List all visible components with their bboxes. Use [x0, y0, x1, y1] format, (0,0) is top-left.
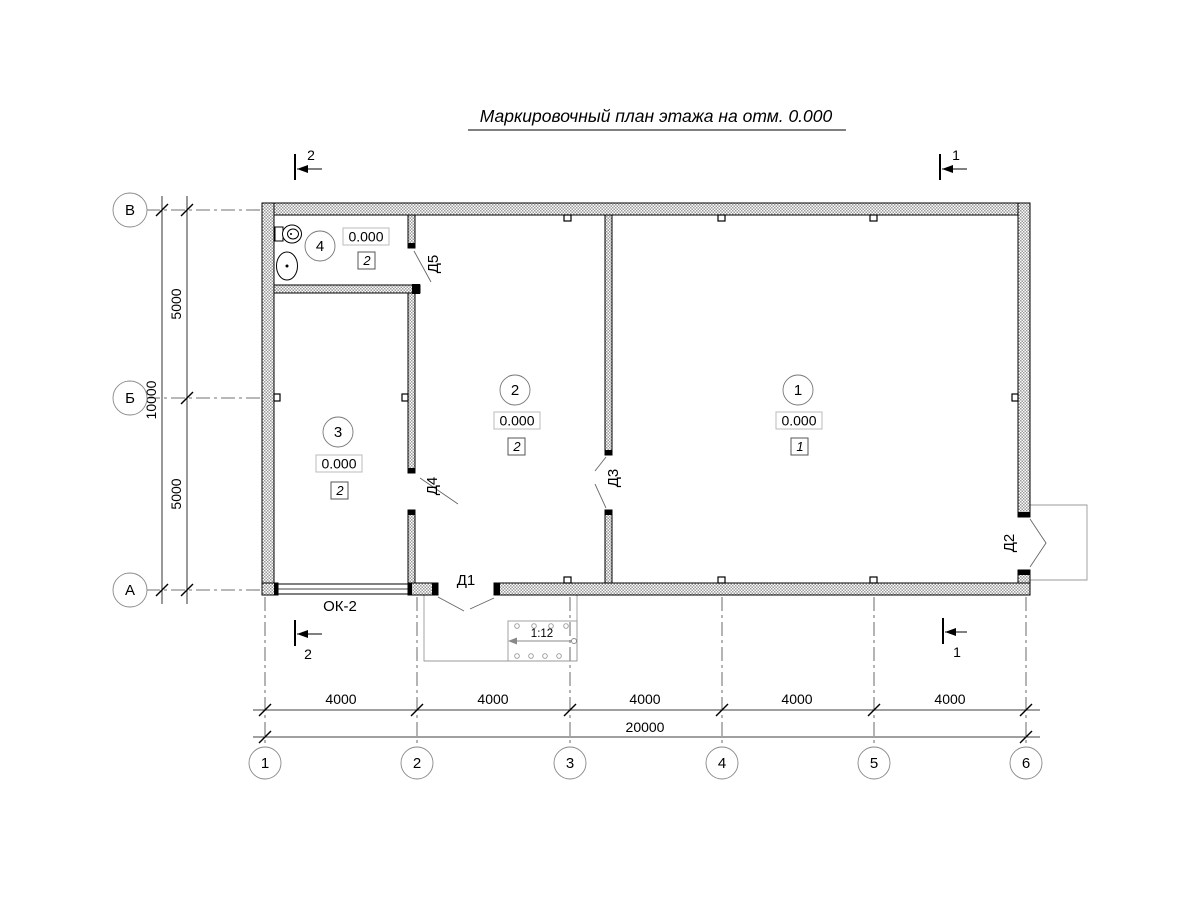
- wall-right-upper: [1018, 203, 1030, 517]
- cap: [605, 510, 612, 515]
- dim-5000-lower: 5000: [168, 478, 184, 509]
- section-mark-1-bottom: 1: [943, 618, 967, 660]
- axis-label-b: Б: [125, 390, 135, 407]
- wall-bottom-right: [494, 583, 1030, 595]
- elevation-value: 0.000: [321, 456, 356, 472]
- room-number: 1: [794, 382, 802, 399]
- ramp-arrow-tail-circle: [572, 639, 577, 644]
- door2-jamb-bottom: [1018, 570, 1030, 575]
- tab: [718, 215, 725, 221]
- room-1-annotation: 1 0.000 1: [776, 375, 822, 455]
- door1-jamb-right: [494, 583, 500, 595]
- floor-plan-sheet: Маркировочный план этажа на отм. 0.000 1…: [0, 0, 1200, 900]
- section-number: 2: [307, 147, 315, 163]
- ramp-dot: [564, 624, 569, 629]
- axis-label-a: А: [125, 582, 135, 599]
- room-3-annotation: 3 0.000 2: [316, 417, 362, 499]
- sink-drain: [286, 265, 289, 268]
- door-label-d1: Д1: [457, 572, 476, 589]
- elevation-value: 0.000: [499, 413, 534, 429]
- window-jamb-right: [408, 583, 412, 595]
- interior-partitions: [274, 215, 612, 583]
- floor-plan-drawing: Маркировочный план этажа на отм. 0.000 1…: [0, 0, 1200, 900]
- section-number: 2: [304, 646, 312, 662]
- door2-swing: [1030, 519, 1046, 567]
- wall-left: [262, 203, 274, 595]
- partition-h-room4: [274, 285, 420, 293]
- door2-jamb-top: [1018, 512, 1030, 517]
- finish-number: 1: [796, 439, 803, 454]
- door1-swing: [438, 597, 464, 611]
- axis-label-v: В: [125, 202, 135, 219]
- door-label-d5: Д5: [425, 255, 442, 274]
- tab: [564, 577, 571, 583]
- tab: [274, 394, 280, 401]
- dim-5000-upper: 5000: [168, 288, 184, 319]
- door1-swing: [470, 598, 494, 609]
- axis-bubbles-bottom: [249, 747, 1042, 779]
- tab: [718, 577, 725, 583]
- door1-jamb-left: [432, 583, 438, 595]
- section-mark-2-bottom: 2: [295, 620, 322, 662]
- axis-label-2: 2: [413, 755, 421, 772]
- cap: [412, 284, 420, 294]
- elevation-value: 0.000: [781, 413, 816, 429]
- door-label-d2: Д2: [1001, 534, 1018, 553]
- window-ok2: [274, 583, 412, 595]
- ramp-dot: [515, 654, 520, 659]
- door-label-d4: Д4: [424, 477, 441, 496]
- ramp-dot: [529, 654, 534, 659]
- room-2-annotation: 2 0.000 2: [494, 375, 540, 455]
- tab: [564, 215, 571, 221]
- dim-bay-5: 4000: [934, 691, 965, 707]
- drawing-title: Маркировочный план этажа на отм. 0.000: [468, 106, 846, 130]
- cap: [408, 468, 415, 473]
- tab: [870, 215, 877, 221]
- ramp-dot: [557, 654, 562, 659]
- door-labels: Д1 Д2 Д3 Д4 Д5 ОК-2: [323, 255, 1018, 615]
- entry-porch-outline: [424, 595, 577, 661]
- section-mark-1-top: 1: [940, 147, 967, 180]
- axis-label-6: 6: [1022, 755, 1030, 772]
- partition-b-upper: [605, 215, 612, 455]
- partition-b-lower: [605, 510, 612, 583]
- toilet-fixture: [275, 225, 302, 243]
- tab: [870, 577, 877, 583]
- room-number: 3: [334, 424, 342, 441]
- ramp-arrow-head: [508, 638, 517, 645]
- door-label-d3: Д3: [605, 469, 622, 488]
- cap: [408, 510, 415, 515]
- window-label-ok2: ОК-2: [323, 598, 357, 615]
- cap: [408, 243, 415, 248]
- partition-a-mid: [408, 293, 415, 473]
- dim-ticks: [156, 204, 193, 596]
- section-number: 1: [953, 644, 961, 660]
- elevation-value: 0.000: [348, 229, 383, 245]
- dim-bay-2: 4000: [477, 691, 508, 707]
- room-number: 4: [316, 238, 324, 255]
- ramp-dot: [543, 654, 548, 659]
- left-dimensions: [156, 196, 193, 604]
- door-leaders: [414, 251, 1046, 611]
- finish-number: 2: [335, 483, 344, 498]
- dim-bay-3: 4000: [629, 691, 660, 707]
- cap: [605, 450, 612, 455]
- dim-bay-4: 4000: [781, 691, 812, 707]
- partition-a-lower: [408, 510, 415, 583]
- wall-tabs: [274, 215, 1018, 583]
- exterior-walls: [262, 203, 1030, 595]
- ramp-dot: [515, 624, 520, 629]
- dim-total-width: 20000: [626, 719, 665, 735]
- toilet-bowl-inner: [288, 229, 299, 239]
- room-4-annotation: 4 0.000 2: [305, 228, 389, 269]
- axis-label-3: 3: [566, 755, 574, 772]
- tab: [402, 394, 408, 401]
- wall-top: [262, 203, 1030, 215]
- toilet-drain: [290, 233, 292, 235]
- room-number: 2: [511, 382, 519, 399]
- axis-label-4: 4: [718, 755, 726, 772]
- finish-number: 2: [512, 439, 521, 454]
- finish-number: 2: [362, 253, 371, 268]
- title-text: Маркировочный план этажа на отм. 0.000: [480, 106, 833, 126]
- tab: [1012, 394, 1018, 401]
- dim-bay-1: 4000: [325, 691, 356, 707]
- axis-label-5: 5: [870, 755, 878, 772]
- section-number: 1: [952, 147, 960, 163]
- axis-label-1: 1: [261, 755, 269, 772]
- window-jamb-left: [274, 583, 278, 595]
- section-mark-2-top: 2: [295, 147, 322, 180]
- side-porch-outline: [1030, 505, 1087, 580]
- sink-fixture: [277, 252, 298, 280]
- ramp-slope-label: 1:12: [531, 628, 553, 640]
- toilet-tank: [275, 227, 283, 241]
